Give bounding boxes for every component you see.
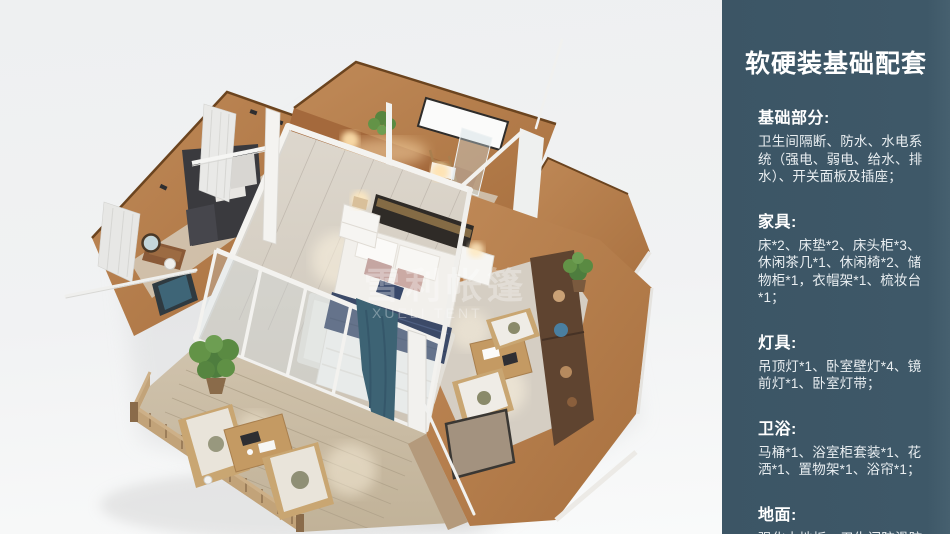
section-heading: 卫浴: — [758, 415, 930, 439]
section-heading: 灯具: — [758, 329, 930, 353]
floorplan-3d-render: 雪利帐篷 XUELI TENT — [0, 0, 722, 534]
lamp-glow — [468, 242, 484, 258]
section-heading: 地面: — [758, 501, 930, 525]
section-lighting: 灯具: 吊顶灯*1、卧室壁灯*4、镜前灯*1、卧室灯带； — [758, 329, 930, 393]
panel-title: 软硬装基础配套 — [738, 44, 934, 80]
section-body: 吊顶灯*1、卧室壁灯*4、镜前灯*1、卧室灯带； — [758, 358, 930, 393]
watermark-latin: XUELI TENT — [372, 305, 483, 321]
section-bathroom: 卫浴: 马桶*1、浴室柜套装*1、花洒*1、置物架*1、浴帘*1； — [758, 415, 930, 479]
section-heading: 家具: — [758, 208, 930, 232]
section-flooring: 地面: 强化木地板、卫生间防滑防潮石塑板； — [758, 501, 930, 534]
watermark-cn: 雪利帐篷 — [364, 265, 528, 306]
section-body: 强化木地板、卫生间防滑防潮石塑板； — [758, 530, 930, 534]
section-furniture: 家具: 床*2、床垫*2、床头柜*3、休闲茶几*1、休闲椅*2、储物柜*1，衣帽… — [758, 208, 930, 307]
section-body: 床*2、床垫*2、床头柜*3、休闲茶几*1、休闲椅*2、储物柜*1，衣帽架*1、… — [758, 237, 930, 307]
section-body: 马桶*1、浴室柜套装*1、花洒*1、置物架*1、浴帘*1； — [758, 444, 930, 479]
curtain — [199, 104, 236, 202]
section-heading: 基础部分: — [758, 104, 930, 128]
blue-plate — [554, 323, 568, 337]
stool — [165, 259, 176, 270]
slide: 雪利帐篷 XUELI TENT 软硬装基础配套 基础部分: 卫生间隔断、防水、水… — [0, 0, 950, 534]
kettle — [204, 476, 212, 484]
section-basics: 基础部分: 卫生间隔断、防水、水电系统（强电、弱电、给水、排水）、开关面板及插座… — [758, 104, 930, 186]
section-body: 卫生间隔断、防水、水电系统（强电、弱电、给水、排水）、开关面板及插座； — [758, 133, 930, 186]
round-mirror — [143, 235, 160, 252]
spec-panel: 软硬装基础配套 基础部分: 卫生间隔断、防水、水电系统（强电、弱电、给水、排水）… — [722, 0, 950, 534]
curtain — [98, 202, 140, 282]
floorplan-render-area: 雪利帐篷 XUELI TENT — [0, 0, 722, 534]
